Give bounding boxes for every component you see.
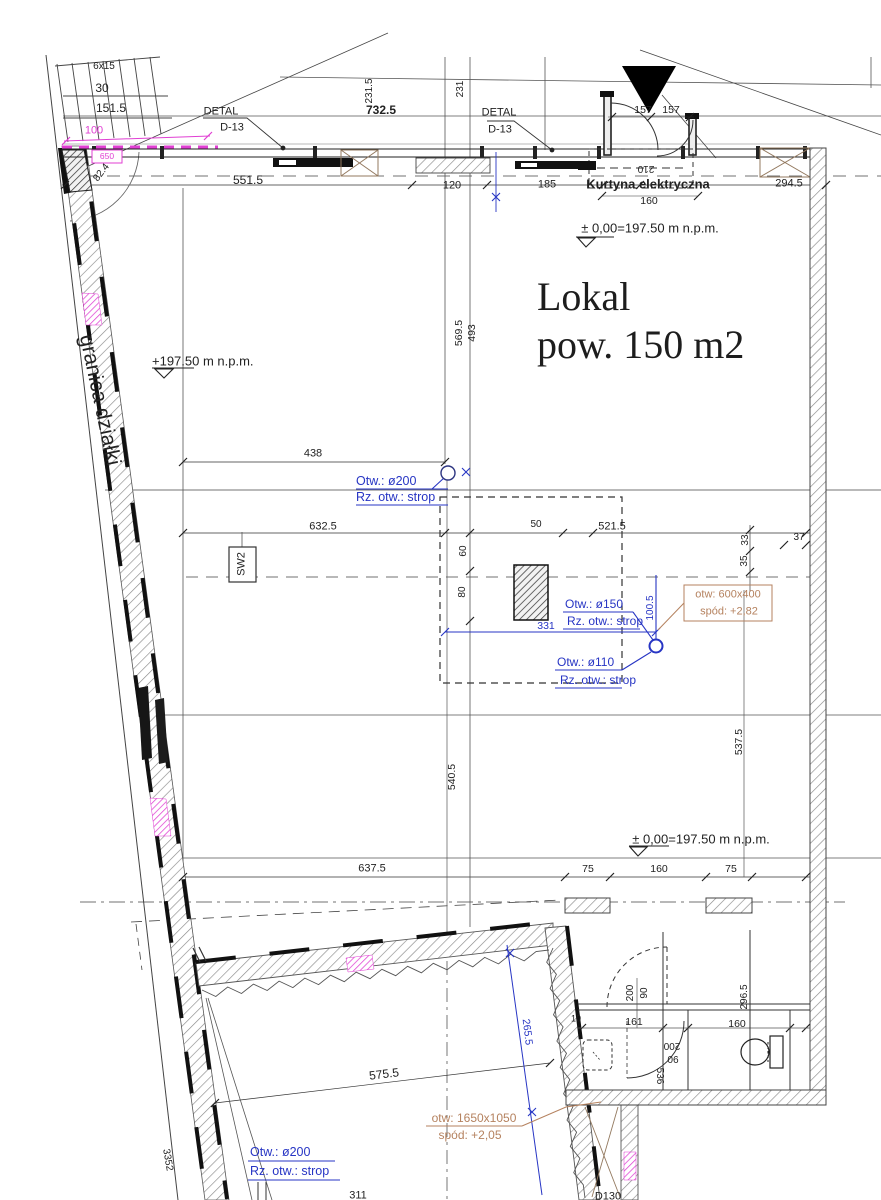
floor-plan-drawing (0, 0, 881, 1200)
plot-boundary-wall (46, 55, 229, 1200)
storefront-wall (62, 146, 810, 177)
room-area: pow. 150 m2 (537, 321, 744, 369)
bathroom (566, 930, 826, 1105)
ceiling-opening-110 (650, 640, 663, 653)
wall-segment-hatched (416, 158, 490, 173)
lower-building (193, 922, 638, 1200)
dim-line-575 (215, 1063, 550, 1103)
column-pillar (514, 565, 548, 620)
door-swing-arc (611, 103, 658, 150)
wall-marker (624, 1152, 636, 1180)
sink (583, 1040, 612, 1070)
entrance-arrow-icon (622, 66, 676, 113)
door-swing-arc (627, 1021, 684, 1078)
room-name: Lokal (537, 273, 744, 321)
ceiling-opening-200 (441, 466, 455, 480)
entrance-door (578, 66, 699, 196)
toilet (741, 1039, 769, 1065)
right-wall (810, 148, 826, 1105)
detail-leaders (203, 118, 554, 152)
toilet-tank (770, 1036, 783, 1068)
wall-tag-box (92, 150, 122, 163)
lintel-hatched (565, 898, 610, 913)
bathroom-bottom-wall (566, 1090, 826, 1105)
wall-marker (346, 955, 374, 972)
floor-plan-sheet: Lokal pow. 150 m2 granica działki6x15301… (0, 0, 881, 1200)
orange-annotations (426, 585, 772, 1126)
lintel-hatched (706, 898, 752, 913)
room-title: Lokal pow. 150 m2 (537, 273, 744, 369)
sw2-box (229, 547, 256, 582)
